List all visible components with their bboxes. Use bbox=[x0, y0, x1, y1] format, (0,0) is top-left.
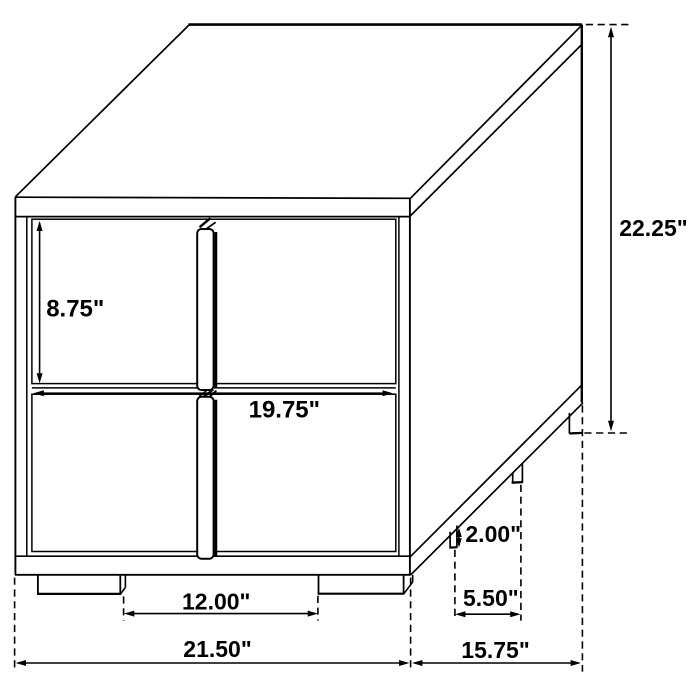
svg-text:19.75": 19.75" bbox=[249, 397, 320, 424]
svg-text:22.25": 22.25" bbox=[619, 215, 687, 241]
svg-text:12.00": 12.00" bbox=[182, 588, 250, 614]
svg-text:5.50": 5.50" bbox=[463, 585, 519, 611]
svg-text:15.75": 15.75" bbox=[461, 637, 529, 663]
svg-text:2.00": 2.00" bbox=[465, 521, 521, 547]
svg-text:8.75": 8.75" bbox=[46, 295, 104, 322]
svg-text:21.50": 21.50" bbox=[183, 636, 251, 662]
